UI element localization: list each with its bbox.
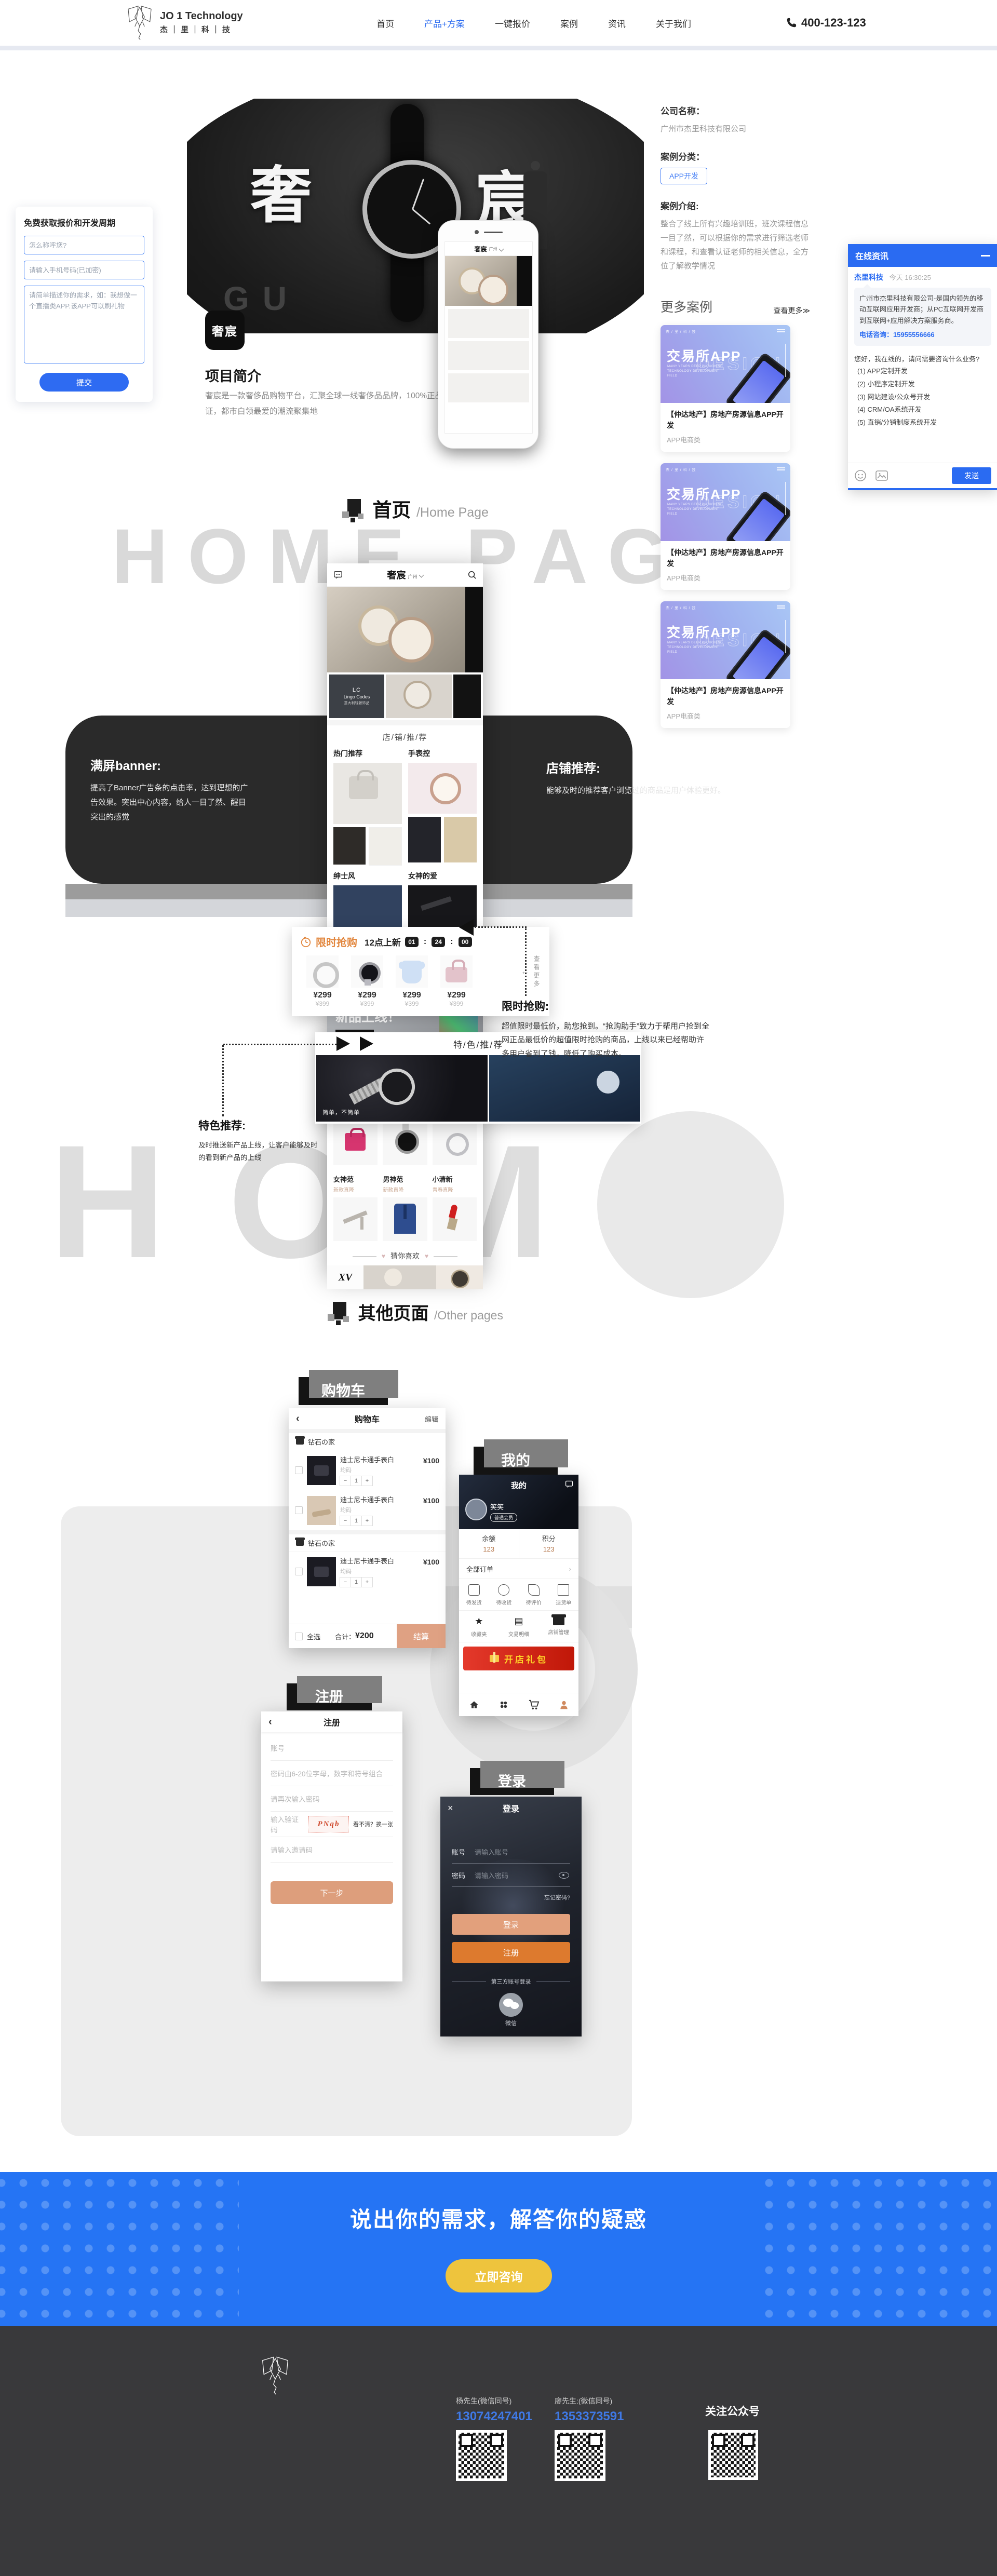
send-button[interactable]: 发送 xyxy=(952,467,991,484)
case-card-title[interactable]: 【仲达地产】房地产房源信息APP开发 xyxy=(667,685,784,707)
message-icon xyxy=(565,1480,573,1488)
project-intro-title: 项目简介 xyxy=(205,365,261,385)
annotation-shop-text: 能够及时的推荐客户浏览过的商品是用户体验更好。 xyxy=(546,784,726,798)
cta-consult-button[interactable]: 立即咨询 xyxy=(446,2259,552,2292)
brand-logo: XV xyxy=(327,1265,363,1289)
clock-icon xyxy=(300,936,312,948)
contact1-name: 杨先生(微信同号) xyxy=(456,2396,532,2406)
case-card[interactable]: 杰 / 里 / 科 / 技 交易所APP MANY YEARS DEEP PLO… xyxy=(661,325,790,452)
nav-item-news[interactable]: 资讯 xyxy=(608,17,626,30)
category-tab-icon xyxy=(498,1700,509,1710)
checkout-button: 结算 xyxy=(397,1624,446,1648)
flash-product-dress: ¥299 ¥399 xyxy=(389,955,434,1007)
hamburger-icon xyxy=(777,605,785,606)
password-label: 密码 xyxy=(452,1870,475,1880)
chevron-down-icon xyxy=(419,572,424,577)
cta-title: 说出你的需求，解答你的疑惑 xyxy=(0,2202,997,2234)
chat-option-4[interactable]: (4) CRM/OA系统开发 xyxy=(854,403,991,416)
flash-more-text: 查看更多 xyxy=(532,955,541,989)
chat-tel-label: 电话咨询： xyxy=(859,331,893,339)
avatar xyxy=(465,1499,487,1520)
heart-icon: ♥ xyxy=(382,1252,385,1260)
cart-item: 迪士尼卡通手表白 均码 −1+ ¥100 xyxy=(289,1450,446,1490)
flash-price: ¥299 xyxy=(389,991,434,1000)
camera-dot xyxy=(475,230,479,234)
chat-title: 在线资讯 xyxy=(855,249,888,262)
feature-caption: 简单，不简单 xyxy=(322,1108,360,1116)
annotation-banner-title: 满屏banner: xyxy=(90,756,249,774)
chat-time: 今天 16:30:25 xyxy=(890,274,931,281)
message-icon xyxy=(333,570,343,579)
register-title: 注册 xyxy=(261,1716,402,1728)
other-pages-header: 其他页面 /Other pages xyxy=(187,1299,644,1325)
logo-text-cn: 杰｜里｜科｜技 xyxy=(160,24,243,35)
brand-tile-desc: 意大利轻奢饰品 xyxy=(344,700,369,706)
mini-content-row xyxy=(448,373,529,402)
section-hot: 热门推荐 xyxy=(333,748,402,759)
case-card[interactable]: 杰 / 里 / 科 / 技 交易所APP MANY YEARS DEEP PLO… xyxy=(661,463,790,590)
annotation-shop-title: 店铺推荐: xyxy=(546,758,726,776)
section-goddess: 女神的爱 xyxy=(408,871,477,881)
captcha-field: 输入验证码 xyxy=(271,1814,304,1835)
select-all-label: 全选 xyxy=(307,1631,320,1641)
brand-strip: LC Lingo Codes 意大利轻奢饰品 xyxy=(327,672,483,720)
case-card-image: 杰 / 里 / 科 / 技 交易所APP MANY YEARS DEEP PLO… xyxy=(661,325,790,403)
cat-name: 小清新 xyxy=(433,1174,477,1184)
annotation-banner-text: 提高了Banner广告条的点击率，达到理想的广告效果。突出中心内容，给人一目了然… xyxy=(90,781,249,824)
flash-price: ¥299 xyxy=(434,991,479,1000)
callout-arrow-left xyxy=(459,919,474,936)
tool-icon-label: 收藏夹 xyxy=(459,1630,499,1638)
online-chat-widget: 在线资讯 杰里科技 今天 16:30:25 广州市杰里科技有限公司-是国内领先的… xyxy=(848,244,997,490)
third-party-label: 第三方账号登录 xyxy=(491,1977,531,1986)
cart-title: 购物车 xyxy=(289,1412,446,1425)
case-card-category: APP电商类 xyxy=(667,711,784,721)
case-intro-label: 案例介绍: xyxy=(661,199,810,212)
hamburger-icon xyxy=(777,329,785,330)
back-icon: ‹ xyxy=(296,1413,300,1425)
cat-name: 男神范 xyxy=(383,1174,427,1184)
captcha-refresh: 看不清？换一张 xyxy=(353,1820,393,1828)
checkbox xyxy=(295,1506,303,1514)
case-hero-banner: 奢 宸 GU xyxy=(187,99,644,333)
callout-dotted-line xyxy=(525,928,527,996)
open-store-gift-banner: 开店礼包 xyxy=(463,1647,574,1670)
phone-icon xyxy=(786,17,797,29)
pixel-icon xyxy=(328,1301,351,1324)
qr-code-contact2 xyxy=(555,2430,605,2481)
name-input[interactable] xyxy=(24,236,144,254)
chevron-down-icon xyxy=(498,246,504,251)
wechat-label: 微信 xyxy=(452,2019,570,2027)
login-label-text: 登录 xyxy=(498,1774,526,1789)
elephant-logo-icon xyxy=(125,4,155,41)
flash-product-watch: ¥299 ¥399 xyxy=(345,955,389,1007)
chat-option-1[interactable]: (1) APP定制开发 xyxy=(854,365,991,378)
cat-sub: 新款直降 xyxy=(333,1185,378,1193)
chat-sender: 杰里科技 xyxy=(854,273,883,281)
wechat-icon xyxy=(499,1993,523,2017)
chat-greeting: 您好，我在线的，请问需要咨询什么业务? xyxy=(854,353,991,365)
transactions-icon: ▤ xyxy=(499,1616,539,1627)
halftone-dots-left xyxy=(0,2172,239,2326)
hero-phone-mockup: 奢宸 广州 xyxy=(438,220,538,449)
cat-sub: 新款直降 xyxy=(383,1185,427,1193)
register-screen-label: 注册 xyxy=(287,1683,372,1710)
decor-bar xyxy=(785,344,786,377)
order-icon-label: 待收货 xyxy=(489,1598,519,1606)
heart-icon: ♥ xyxy=(425,1252,428,1260)
order-icon-label: 待发货 xyxy=(459,1598,489,1606)
cat-sub: 青春直降 xyxy=(433,1185,477,1193)
brand-tile-name: Lingo Codes xyxy=(344,694,370,699)
register-button: 注册 xyxy=(452,1942,570,1963)
brand-tile-photo xyxy=(386,675,452,718)
return-order-icon xyxy=(558,1584,569,1596)
cart-screenshot: ‹ 购物车 编辑 钻石の家 迪士尼卡通手表白 均码 −1+ ¥100 迪士尼卡通… xyxy=(289,1408,446,1648)
eye-icon xyxy=(559,1872,569,1879)
page: HOME PAGE HOME JO 1 Technology 杰｜里｜科｜技 首… xyxy=(0,0,997,2576)
banner-char-left: 奢 xyxy=(250,145,312,234)
tool-icon-label: 店铺管理 xyxy=(538,1628,578,1636)
cart-label-text: 购物车 xyxy=(321,1383,365,1399)
logo-text-en: JO 1 Technology xyxy=(160,10,243,22)
checkbox xyxy=(295,1568,303,1575)
card-brand: 杰 / 里 / 科 / 技 xyxy=(666,605,696,611)
app-hero-banner xyxy=(327,587,483,672)
plus-stepper: + xyxy=(361,1516,373,1526)
chat-tel-number[interactable]: 15955556666 xyxy=(893,331,935,339)
shop-recommend-header: 店/铺/推/荐 xyxy=(327,725,483,748)
home-tab-icon xyxy=(469,1700,479,1710)
home-section-subtitle: /Home Page xyxy=(416,505,489,520)
chat-option-2[interactable]: (2) 小程序定制开发 xyxy=(854,378,991,391)
qty-value: 1 xyxy=(351,1516,362,1526)
contact1-number: 13074247401 xyxy=(456,2409,532,2424)
item-name: 迪士尼卡通手表白 xyxy=(340,1454,419,1464)
pending-ship-icon xyxy=(468,1584,480,1596)
minus-stepper: − xyxy=(340,1476,351,1486)
order-icon-label: 待评价 xyxy=(519,1598,549,1606)
contact2-name: 廖先生:(微信同号) xyxy=(555,2396,624,2406)
profile-screen-label: 我的 xyxy=(474,1447,558,1475)
profile-name: 笑笑 xyxy=(490,1502,504,1512)
qty-value: 1 xyxy=(351,1577,362,1587)
item-size: 均码 xyxy=(340,1506,419,1514)
main-nav: 首页 产品+方案 一键报价 案例 资讯 关于我们 xyxy=(376,0,691,46)
cart-screen-label: 购物车 xyxy=(299,1377,388,1405)
minus-stepper: − xyxy=(340,1516,351,1526)
play-arrow-icon xyxy=(360,1036,373,1051)
mini-content-row xyxy=(448,309,529,338)
bg-circle xyxy=(597,1111,784,1298)
speaker-slot xyxy=(484,232,503,233)
case-card[interactable]: 杰 / 里 / 科 / 技 交易所APP MANY YEARS DEEP PLO… xyxy=(661,601,790,728)
profile-title: 我的 xyxy=(459,1475,578,1491)
account-label: 账号 xyxy=(452,1847,475,1857)
submit-button[interactable]: 提交 xyxy=(39,373,129,392)
captcha-image: PNqb xyxy=(308,1816,349,1832)
case-card-title[interactable]: 【仲达地产】房地产房源信息APP开发 xyxy=(667,409,784,431)
login-screen-label: 登录 xyxy=(470,1768,554,1795)
store-manage-icon xyxy=(553,1617,564,1625)
chat-option-3[interactable]: (3) 网站建设/公众号开发 xyxy=(854,391,991,404)
company-label: 公司名称： xyxy=(661,104,810,117)
nav-item-cases[interactable]: 案例 xyxy=(560,17,578,30)
feature-side-image xyxy=(489,1055,640,1122)
halftone-dots-right xyxy=(758,2172,997,2326)
site-logo[interactable]: JO 1 Technology 杰｜里｜科｜技 xyxy=(125,4,243,41)
flash-view-more: ← 查看更多 xyxy=(521,955,541,989)
gift-icon xyxy=(490,1655,499,1662)
brand-tile-dark xyxy=(453,675,481,718)
mini-app-brand: 奢宸 xyxy=(474,245,487,253)
flash-product-bag: ¥299 ¥399 xyxy=(434,955,479,1007)
invite-code-field: 请输入邀请码 xyxy=(271,1837,393,1863)
gift-text: 开店礼包 xyxy=(504,1652,548,1665)
points-label: 积分 xyxy=(519,1533,579,1543)
contact2-number: 1353373591 xyxy=(555,2409,624,2424)
app-icon: 奢宸 xyxy=(205,311,245,350)
category-label: 案例分类： xyxy=(661,150,810,163)
elephant-logo-icon xyxy=(259,2355,292,2395)
password-field: 密码由6-20位字母，数字和符号组合 xyxy=(271,1761,393,1786)
countdown-hours: 01 xyxy=(405,937,419,947)
callout-dotted-line xyxy=(222,1045,224,1116)
case-intro-text: 整合了线上所有兴趣培训班，班次课程信息一目了然，可以根据你的需求进行筛选老师和课… xyxy=(661,217,810,273)
feature-watch-image: 简单，不简单 xyxy=(316,1055,488,1122)
flash-old-price: ¥399 xyxy=(389,1000,434,1007)
checkbox xyxy=(295,1466,303,1474)
next-step-button: 下一步 xyxy=(271,1881,393,1904)
category-tag[interactable]: APP开发 xyxy=(661,168,707,184)
nav-item-products[interactable]: 产品+方案 xyxy=(424,17,465,30)
hamburger-icon xyxy=(777,467,785,468)
countdown-colon: : xyxy=(424,937,426,947)
tool-icon-label: 交易明细 xyxy=(499,1630,539,1638)
annotation-flash-title: 限时抢购: xyxy=(502,998,711,1014)
qty-value: 1 xyxy=(351,1476,362,1486)
register-screenshot: ‹ 注册 账号 密码由6-20位字母，数字和符号组合 请再次输入密码 输入验证码… xyxy=(261,1711,402,1981)
cart-item: 迪士尼卡通手表白 均码 −1+ ¥100 xyxy=(289,1490,446,1530)
item-name: 迪士尼卡通手表白 xyxy=(340,1556,419,1566)
countdown-seconds: 00 xyxy=(459,937,472,947)
smiley-icon[interactable] xyxy=(854,469,867,482)
profile-label-text: 我的 xyxy=(501,1452,530,1468)
profile-screenshot: 我的 笑笑 普通会员 余额123 积分123 全部订单 › 待发货 待收货 待评… xyxy=(459,1475,578,1716)
store-name: 钻石の家 xyxy=(308,1437,335,1447)
view-more-link[interactable]: 查看更多≫ xyxy=(773,305,810,316)
nav-item-quote[interactable]: 一键报价 xyxy=(495,17,530,30)
mini-hero-image xyxy=(445,256,532,306)
annotation-feature-text: 及时推送新产品上线，让客户能够及时的看到新产品的上线 xyxy=(198,1139,322,1164)
decor-bar xyxy=(785,620,786,653)
shop-icon xyxy=(296,1540,304,1546)
more-cases-title: 更多案例 xyxy=(661,297,712,316)
card-brand: 杰 / 里 / 科 / 技 xyxy=(666,329,696,334)
other-section-title: 其他页面 xyxy=(358,1304,429,1324)
balance-label: 余额 xyxy=(459,1533,519,1543)
plus-stepper: + xyxy=(361,1577,373,1587)
profile-tab-icon xyxy=(559,1700,569,1710)
shop-icon xyxy=(296,1438,304,1445)
project-intro-text: 奢宸是一款奢侈品购物平台，汇聚全球一线奢侈品品牌，100%正品保证，都市白领最爱… xyxy=(205,388,453,420)
balance-value: 123 xyxy=(459,1545,519,1553)
item-size: 均码 xyxy=(340,1466,419,1474)
chevron-right-icon: › xyxy=(569,1565,571,1573)
case-card-image: 杰 / 里 / 科 / 技 交易所APP MANY YEARS DEEP PLO… xyxy=(661,601,790,679)
case-info-panel: 公司名称： 广州市杰里科技有限公司 案例分类： APP开发 案例介绍: 整合了线… xyxy=(661,104,810,739)
countdown-colon: : xyxy=(450,937,453,947)
item-price: ¥100 xyxy=(423,1496,439,1505)
flash-product-ring: ¥299 ¥399 xyxy=(300,955,345,1007)
store-name: 钻石の家 xyxy=(308,1538,335,1548)
register-label-text: 注册 xyxy=(315,1689,343,1705)
home-section-title: 首页 xyxy=(373,500,411,521)
select-all-checkbox xyxy=(295,1633,303,1640)
guess-title: 猜你喜欢 xyxy=(390,1251,420,1261)
flash-title: 限时抢购 xyxy=(316,934,357,949)
item-name: 迪士尼卡通手表白 xyxy=(340,1494,419,1504)
countdown-minutes: 24 xyxy=(432,937,445,947)
card-brand: 杰 / 里 / 科 / 技 xyxy=(666,467,696,473)
other-section-subtitle: /Other pages xyxy=(434,1309,503,1322)
top-navbar: JO 1 Technology 杰｜里｜科｜技 首页 产品+方案 一键报价 案例… xyxy=(0,0,997,46)
qr-code-official xyxy=(708,2430,758,2480)
app-city: 广州 xyxy=(408,573,417,580)
header-phone-number: 400-123-123 xyxy=(801,16,866,30)
feature-header: 特/色/推/荐 xyxy=(453,1037,503,1050)
back-icon: ‹ xyxy=(268,1716,272,1728)
nav-item-about[interactable]: 关于我们 xyxy=(656,17,691,30)
qr-code-contact1 xyxy=(456,2430,507,2481)
section-watch: 手表控 xyxy=(408,748,477,759)
item-size: 均码 xyxy=(340,1567,419,1575)
app-icon-text: 奢宸 xyxy=(212,321,238,339)
forgot-password: 忘记密码? xyxy=(452,1893,570,1901)
cart-item: 迪士尼卡通手表白 均码 −1+ ¥100 xyxy=(289,1552,446,1592)
image-icon[interactable] xyxy=(875,469,888,482)
pending-receive-icon xyxy=(498,1584,509,1596)
app-brand: 奢宸 xyxy=(387,568,406,582)
item-price: ¥100 xyxy=(423,1558,439,1566)
quote-form-title: 免费获取报价和开发周期 xyxy=(24,216,144,228)
minimize-icon[interactable] xyxy=(981,255,990,257)
search-icon xyxy=(467,570,477,579)
password-placeholder: 请输入密码 xyxy=(475,1870,508,1880)
requirement-textarea[interactable] xyxy=(24,286,144,363)
chat-bubble: 广州市杰里科技有限公司-是国内领先的移动互联网应用开发商；从PC互联网开发商到互… xyxy=(854,288,991,346)
flash-old-price: ¥399 xyxy=(434,1000,479,1007)
login-button: 登录 xyxy=(452,1914,570,1935)
minus-stepper: − xyxy=(340,1577,351,1587)
total-label: 合计： xyxy=(335,1631,355,1641)
callout-dotted-line xyxy=(223,1044,336,1045)
brand-banner: XV xyxy=(327,1265,483,1289)
chat-option-5[interactable]: (5) 直销/分销制度系统开发 xyxy=(854,416,991,429)
home-section-header: 首页 /Home Page xyxy=(187,494,644,522)
cat-name: 女神范 xyxy=(333,1174,378,1184)
all-orders-label: 全部订单 xyxy=(466,1564,493,1574)
quote-form: 免费获取报价和开发周期 提交 xyxy=(16,207,153,402)
chat-footer-bar xyxy=(848,488,997,490)
plus-stepper: + xyxy=(361,1476,373,1486)
confirm-password-field: 请再次输入密码 xyxy=(271,1786,393,1812)
header-phone[interactable]: 400-123-123 xyxy=(786,0,866,46)
decor-bar xyxy=(785,482,786,515)
brand-tile-initials: LC xyxy=(353,687,361,693)
chat-intro: 广州市杰里科技有限公司-是国内领先的移动互联网应用开发商；从PC互联网开发商到互… xyxy=(859,293,986,326)
account-placeholder: 请输入账号 xyxy=(475,1847,508,1857)
flash-old-price: ¥399 xyxy=(300,1000,345,1007)
cart-tab-icon xyxy=(528,1700,540,1710)
flash-price: ¥299 xyxy=(345,991,389,1000)
item-price: ¥100 xyxy=(423,1456,439,1465)
section-gent: 绅士风 xyxy=(333,871,402,881)
mini-app-city: 广州 xyxy=(489,246,497,252)
flash-old-price: ¥399 xyxy=(345,1000,389,1007)
annotation-feature-title: 特色推荐: xyxy=(198,1117,322,1133)
login-screenshot: × 登录 账号 请输入账号 密码 请输入密码 忘记密码? 登录 注册 第三方账号… xyxy=(440,1797,582,2036)
case-card-category: APP电商类 xyxy=(667,435,784,444)
order-icon-label: 退货单 xyxy=(549,1598,579,1606)
member-badge: 普通会员 xyxy=(490,1513,517,1522)
login-title: 登录 xyxy=(440,1802,582,1814)
case-card-image: 杰 / 里 / 科 / 技 交易所APP MANY YEARS DEEP PLO… xyxy=(661,463,790,541)
callout-dotted-line xyxy=(475,926,527,928)
annotation-flash-text: 超值限时最低价，助您抢到。“抢购助手”致力于帮用户抢到全网正品最低价的超值限时抢… xyxy=(502,1020,711,1061)
case-card-title[interactable]: 【仲达地产】房地产房源信息APP开发 xyxy=(667,547,784,569)
points-value: 123 xyxy=(519,1545,579,1553)
callout-arrow-right xyxy=(336,1036,350,1051)
nav-item-home[interactable]: 首页 xyxy=(376,17,394,30)
cart-edit: 编辑 xyxy=(425,1414,438,1424)
follow-official-title: 关注公众号 xyxy=(705,2403,760,2419)
company-name: 广州市杰里科技有限公司 xyxy=(661,122,810,136)
account-field: 账号 xyxy=(271,1735,393,1761)
mini-content-row xyxy=(448,341,529,370)
phone-input[interactable] xyxy=(24,261,144,279)
cta-section: 说出你的需求，解答你的疑惑 立即咨询 xyxy=(0,2172,997,2326)
flash-price: ¥299 xyxy=(300,991,345,1000)
total-value: ¥200 xyxy=(355,1631,374,1641)
case-card-category: APP电商类 xyxy=(667,573,784,583)
favorites-icon: ★ xyxy=(459,1616,499,1627)
pixel-icon xyxy=(342,498,365,521)
header-divider xyxy=(0,46,997,50)
flash-subtitle: 12点上新 xyxy=(365,935,401,948)
pending-review-icon xyxy=(528,1584,540,1596)
